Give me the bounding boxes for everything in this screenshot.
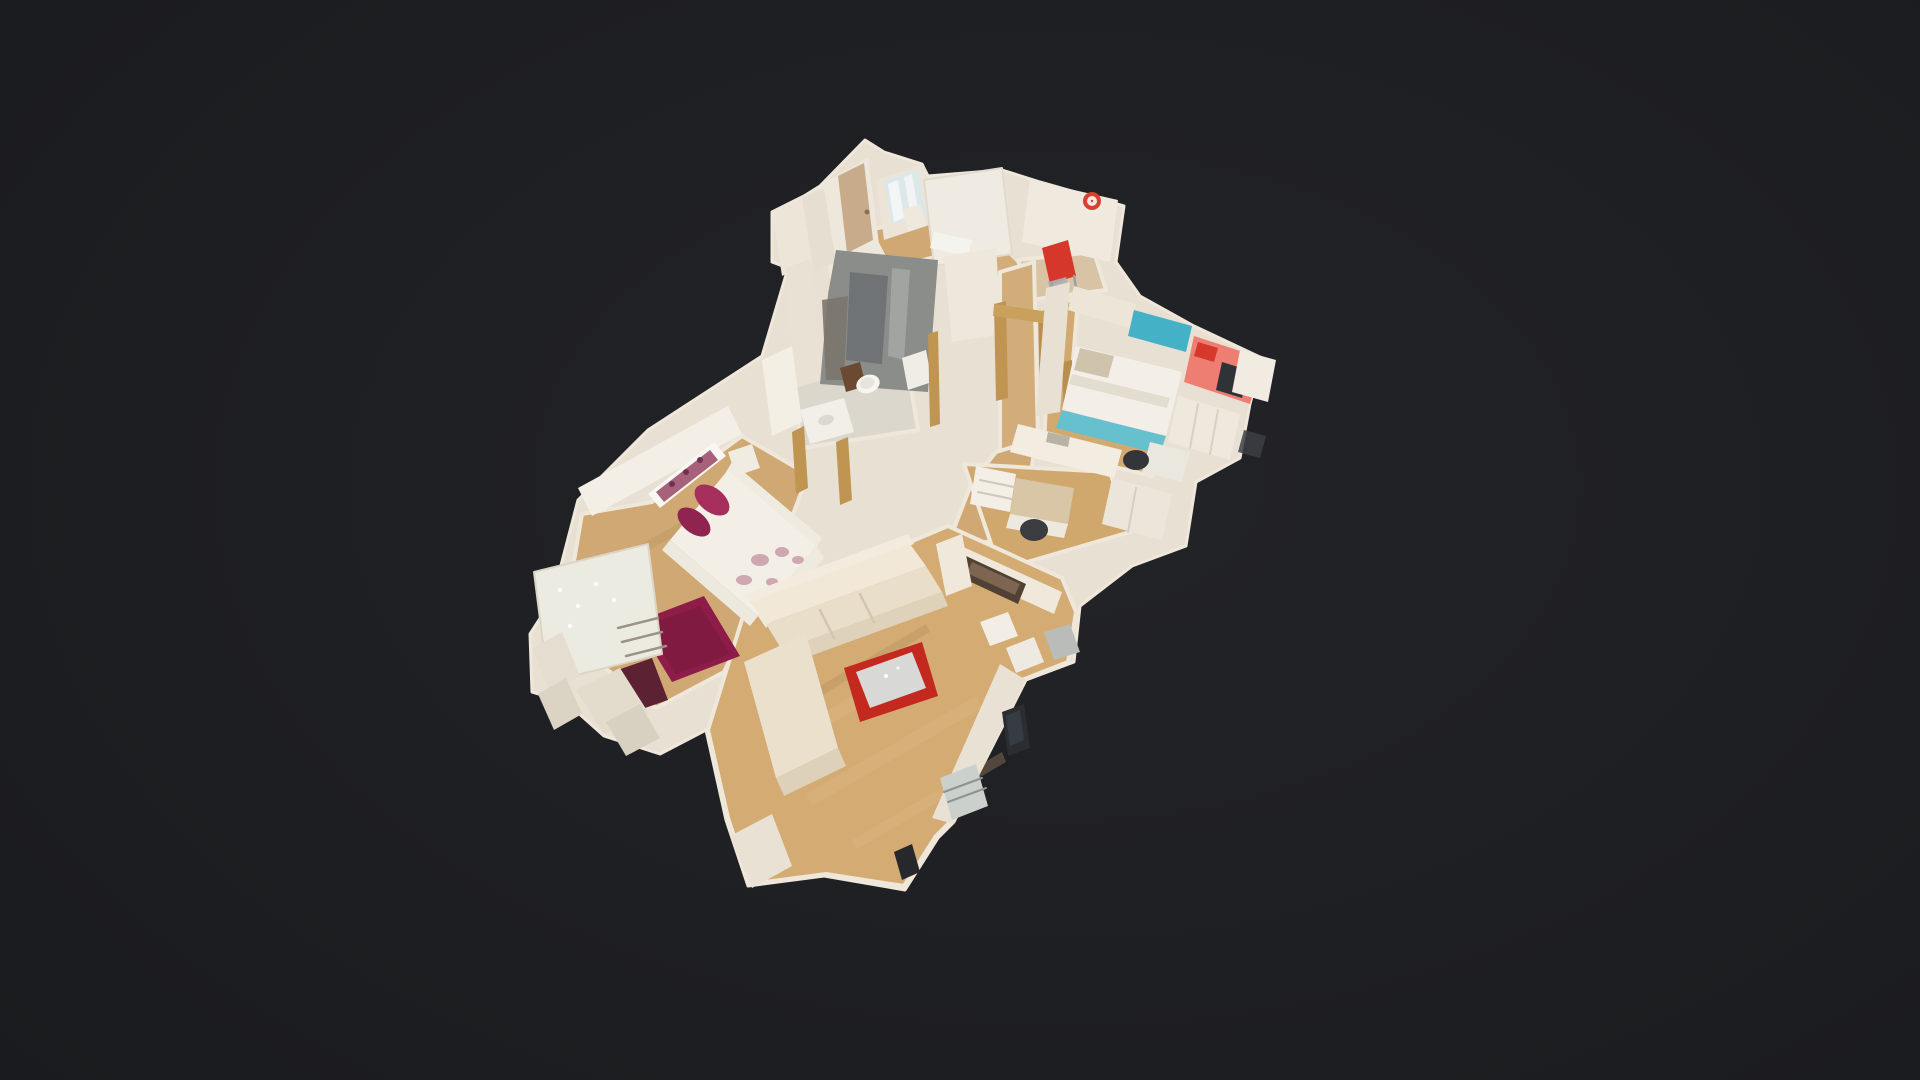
art-floral-motif: [683, 469, 689, 475]
shower-tile-dark: [846, 272, 888, 364]
viewer-stage: [0, 0, 1920, 1080]
front-door-knob: [865, 210, 870, 215]
art-floral-motif: [697, 457, 703, 463]
study-dresser: [970, 466, 1016, 512]
bathroom-door-frame: [928, 331, 940, 427]
kitchen-clock-center: [1091, 200, 1093, 202]
duvet-floral: [775, 547, 789, 557]
study-office-chair: [1020, 519, 1048, 541]
mirror-sparkle: [558, 588, 562, 592]
mirror-sparkle: [568, 624, 572, 628]
duvet-floral: [736, 575, 752, 585]
duvet-floral: [751, 554, 769, 566]
art-floral-motif: [669, 481, 675, 487]
dollhouse-3d-view[interactable]: [0, 0, 1920, 1080]
mirror-sparkle: [576, 604, 580, 608]
ottoman-sparkle: [884, 674, 888, 678]
ottoman-sparkle: [897, 667, 900, 670]
kids-desk-chair: [1123, 450, 1149, 470]
mirror-sparkle: [612, 598, 616, 602]
mirror-sparkle: [594, 582, 598, 586]
hall-west-wall: [944, 248, 1002, 342]
